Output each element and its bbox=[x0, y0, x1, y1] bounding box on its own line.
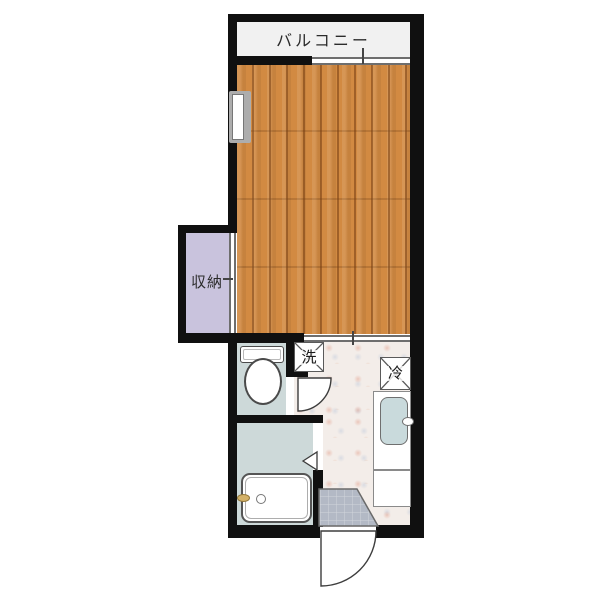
wall-segment bbox=[410, 14, 424, 538]
wall-segment bbox=[228, 56, 312, 65]
main-room-floor bbox=[237, 64, 410, 334]
wall-segment bbox=[228, 14, 424, 22]
bath-door-opening bbox=[313, 423, 323, 470]
washing-machine-space: 洗 bbox=[294, 342, 324, 372]
toilet-bowl bbox=[244, 358, 282, 405]
floorplan: 洗 冷 バルコニー 収納 bbox=[0, 0, 600, 600]
door-tick bbox=[352, 331, 354, 345]
wall-segment bbox=[228, 333, 304, 343]
main-room-sliding-door bbox=[304, 335, 410, 342]
wall-segment bbox=[228, 525, 320, 538]
wall-segment bbox=[228, 333, 237, 538]
wall-segment bbox=[313, 470, 323, 527]
wall-segment bbox=[376, 525, 424, 538]
wall-segment bbox=[178, 333, 237, 343]
bathtub-inner-rim bbox=[245, 477, 308, 519]
bathtub-drain bbox=[256, 494, 266, 504]
kitchen-counter-divider bbox=[373, 469, 411, 471]
wall-segment bbox=[178, 225, 237, 233]
bathtub-faucet bbox=[237, 494, 250, 502]
kitchen-faucet bbox=[402, 417, 414, 426]
storage-label: 収納 bbox=[183, 271, 231, 292]
refrigerator-space: 冷 bbox=[380, 357, 411, 390]
balcony-window bbox=[312, 57, 410, 65]
room-window-panel bbox=[232, 94, 244, 140]
balcony-label: バルコニー bbox=[237, 27, 410, 51]
wall-segment bbox=[228, 415, 323, 423]
entrance-door-swing bbox=[321, 531, 376, 586]
refrigerator-label: 冷 bbox=[387, 366, 404, 381]
washing-machine-label: 洗 bbox=[300, 350, 317, 365]
